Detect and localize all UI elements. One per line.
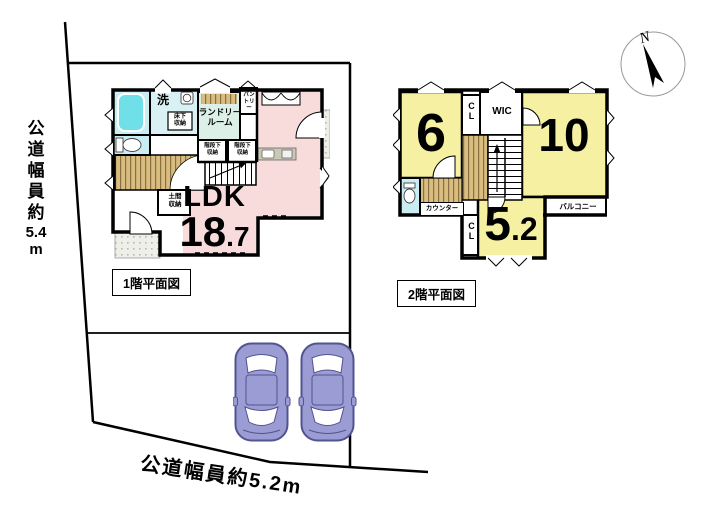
floor2-caption: 2階平面図 bbox=[397, 280, 476, 307]
compass bbox=[613, 24, 693, 104]
hall-wood-floor bbox=[420, 178, 462, 205]
road-left-kanji: 公道幅員約 bbox=[24, 118, 48, 223]
closet-lower-label: CL bbox=[466, 222, 477, 241]
underfloor-storage-label: 床下 収納 bbox=[169, 114, 191, 128]
car-icon bbox=[233, 344, 290, 441]
room6-label: 6 bbox=[401, 106, 461, 160]
closet-upper-label: CL bbox=[466, 102, 477, 121]
stairhall-wood bbox=[462, 135, 488, 200]
washroom-label: 洗 bbox=[157, 94, 169, 107]
balcony-label: バルコニー bbox=[549, 201, 607, 213]
kitchen-sink-icon bbox=[262, 150, 274, 158]
understairs-storage-label-b: 階段下 収納 bbox=[229, 143, 256, 156]
road-width-label-left: 公道幅員約 5.4 m bbox=[24, 118, 48, 258]
car-icon bbox=[299, 344, 356, 441]
kitchen-counter bbox=[258, 148, 296, 160]
entrance-porch bbox=[115, 232, 160, 258]
entrance-door-arc bbox=[130, 212, 152, 234]
wic-label: WIC bbox=[485, 106, 519, 117]
kitchen-cabinet bbox=[262, 92, 300, 105]
toilet-icon bbox=[116, 138, 141, 152]
ldk-area-int: 18 bbox=[179, 208, 226, 255]
counter-label: カウンター bbox=[420, 202, 464, 216]
floorplan-page: { "site": { "road_left": { "kanji": "公道幅… bbox=[0, 0, 705, 525]
pantry-label: パン トリー bbox=[241, 92, 257, 112]
road-left-number: 5.4 bbox=[24, 225, 48, 242]
laundry-room-label: ランドリー ルーム bbox=[197, 107, 243, 127]
understairs-storage-label-a: 階段下 収納 bbox=[199, 143, 226, 156]
parking-cars bbox=[233, 342, 359, 444]
ldk-label: LDK 18.7 bbox=[172, 183, 257, 262]
ldk-area-dec: .7 bbox=[226, 221, 249, 252]
washing-machine-icon bbox=[181, 92, 193, 104]
bathtub-icon bbox=[118, 94, 144, 131]
road-left-unit: m bbox=[24, 242, 48, 259]
laundry-deck bbox=[201, 94, 237, 104]
toilet-icon-2f bbox=[404, 183, 415, 203]
room52-label: 5.2 bbox=[481, 201, 541, 260]
stove-icon bbox=[282, 150, 292, 158]
room10-label: 10 bbox=[534, 112, 594, 158]
site-boundary-left bbox=[65, 22, 93, 422]
floor1-caption: 1階平面図 bbox=[112, 269, 191, 296]
